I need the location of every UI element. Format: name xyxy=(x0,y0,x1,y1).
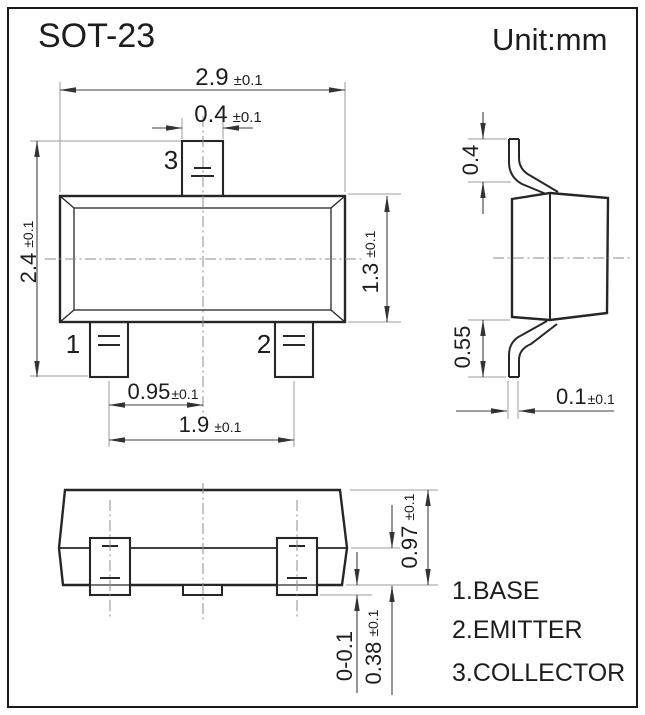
dim-lead-thickness: 0.1±0.1 xyxy=(556,384,615,409)
dim-lead-top-bend: 0.4 xyxy=(458,145,483,176)
pin1-number: 1 xyxy=(66,329,80,359)
bottom-view: 0.97±0.1 0.38±0.1 0-0.1 xyxy=(59,483,438,695)
pin1-lead xyxy=(90,322,128,377)
front-view: 3 1 2 2.9±0.1 0.4±0.1 2.4±0.1 1.3±0.1 0.… xyxy=(16,64,402,447)
legend-emitter: 2.EMITTER xyxy=(452,616,583,644)
dim-pin-center-offset: 0.95±0.1 xyxy=(128,379,199,404)
pin2-number: 2 xyxy=(257,329,271,359)
pin3-number: 3 xyxy=(164,145,178,175)
top-lead-profile xyxy=(509,139,558,194)
bottom-lead-profile xyxy=(509,321,557,377)
dim-body-depth: 0.97±0.1 xyxy=(397,493,422,568)
page-title: SOT-23 xyxy=(38,17,155,55)
pin2-lead xyxy=(275,322,313,377)
package-body-side xyxy=(512,193,608,320)
sot23-package-drawing: SOT-23 Unit:mm xyxy=(0,0,645,715)
dim-lead-width: 0.38±0.1 xyxy=(361,609,386,684)
dim-pin3-width: 0.4±0.1 xyxy=(194,101,261,128)
side-view: 0.4 0.55 0.1±0.1 xyxy=(450,112,634,419)
drawing-sheet: SOT-23 Unit:mm xyxy=(0,0,645,715)
dim-lead-protrusion: 0-0.1 xyxy=(332,631,357,681)
unit-label: Unit:mm xyxy=(492,22,607,57)
dim-body-width: 2.9±0.1 xyxy=(195,64,262,91)
dim-lead-bottom-bend: 0.55 xyxy=(450,326,475,369)
pin-legend: 1.BASE 2.EMITTER 3.COLLECTOR xyxy=(452,577,625,687)
dim-body-height: 1.3±0.1 xyxy=(358,230,383,293)
legend-base: 1.BASE xyxy=(452,577,540,605)
dim-pin-pitch: 1.9±0.1 xyxy=(179,412,242,437)
legend-collector: 3.COLLECTOR xyxy=(452,659,625,687)
